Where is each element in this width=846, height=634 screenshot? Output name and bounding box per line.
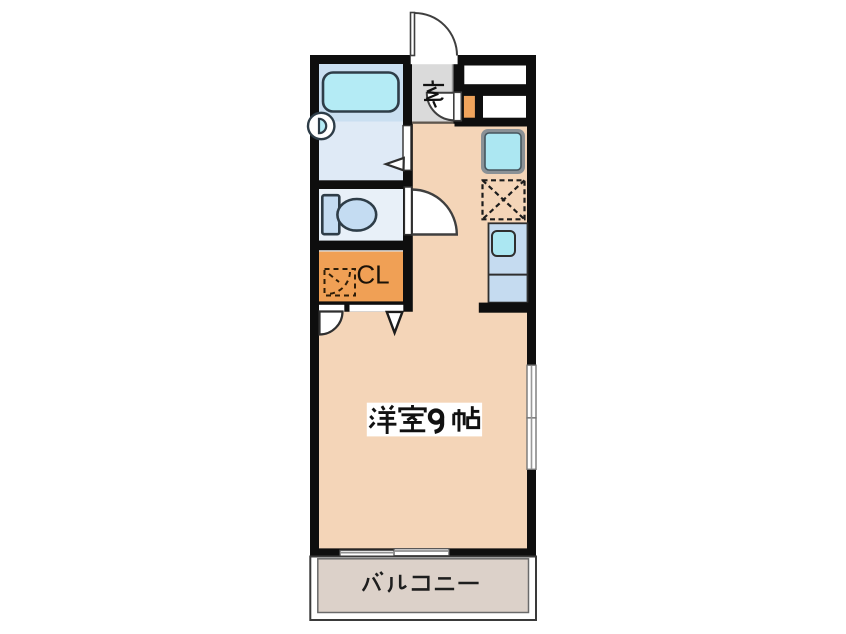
svg-text:CL: CL [356,260,389,290]
